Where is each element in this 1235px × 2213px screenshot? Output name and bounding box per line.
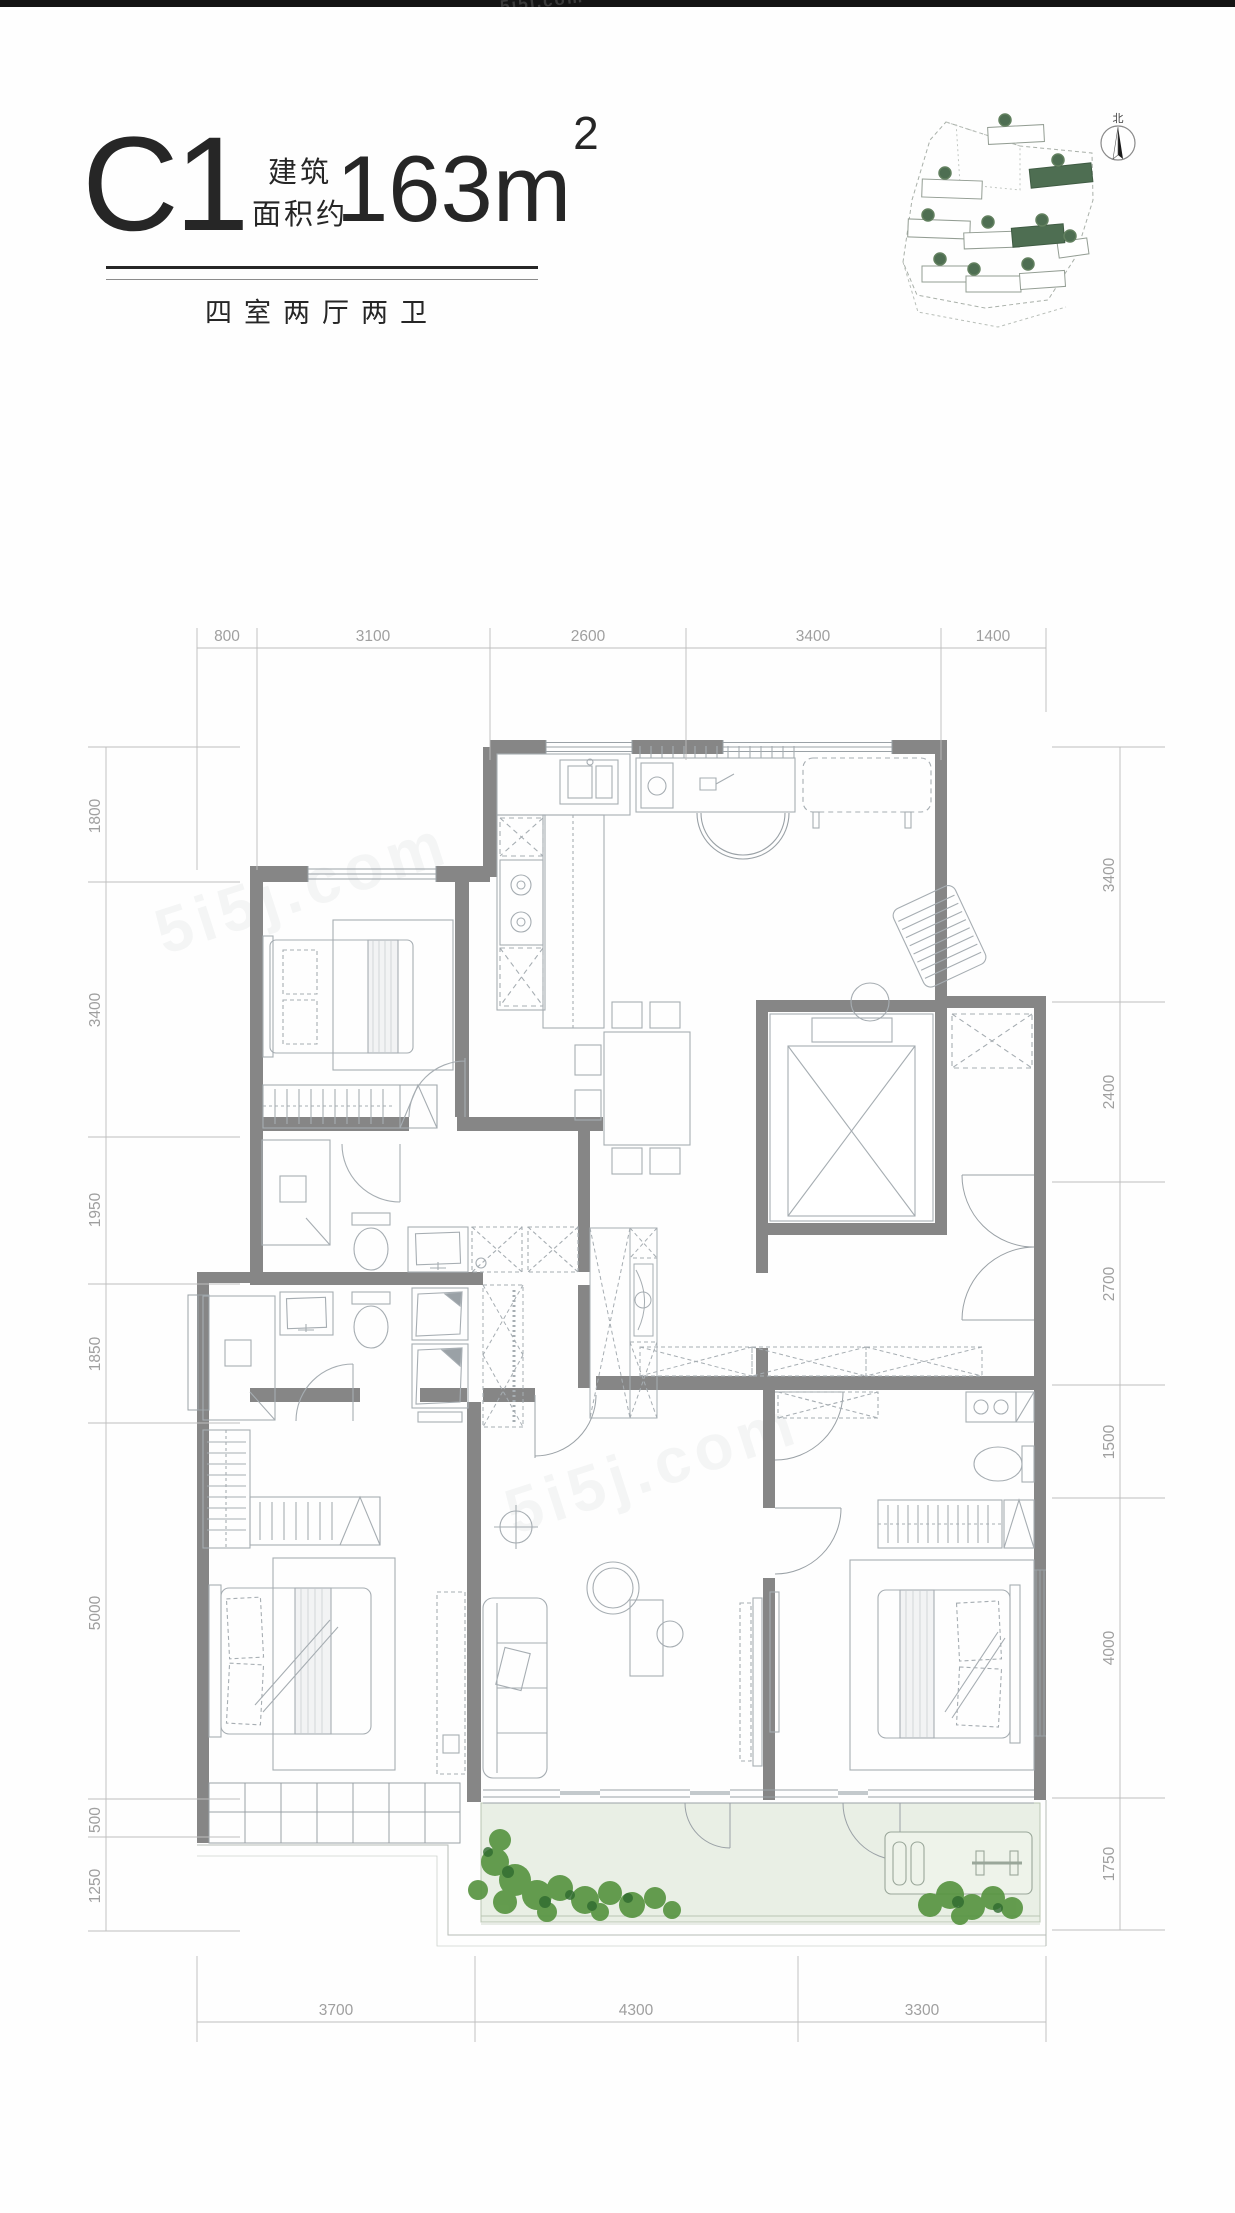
dim-label: 2700 xyxy=(1101,1266,1118,1301)
wardrobe-glyph xyxy=(203,1430,380,1548)
vanity-glyph xyxy=(408,1227,468,1272)
dim-label: 3400 xyxy=(796,628,831,645)
dim-label: 4300 xyxy=(619,2002,654,2019)
laundry-cube-glyph xyxy=(472,1227,522,1272)
dim-label: 2600 xyxy=(571,628,606,645)
bedroom-top-left xyxy=(263,920,465,1128)
layout-label: 四室两厅两卫 xyxy=(106,291,538,330)
top-black-strip: 5i5j.com xyxy=(0,0,1235,7)
dim-label: 1250 xyxy=(87,1868,104,1903)
toilet-glyph xyxy=(352,1292,390,1348)
dim-label: 500 xyxy=(87,1807,104,1833)
dim-label: 1500 xyxy=(1101,1424,1118,1459)
interior-doors xyxy=(535,1175,1034,1860)
kitchen xyxy=(497,754,630,1028)
hall-closets xyxy=(483,1228,982,1427)
closet-glyph xyxy=(878,1500,1034,1548)
coffee-table-glyph xyxy=(587,1562,639,1614)
bed-glyph xyxy=(878,1585,1020,1743)
shower-glyph xyxy=(262,1140,330,1245)
square-meter-superscript: 2 xyxy=(573,107,599,159)
bathroom-1 xyxy=(262,1140,578,1272)
kitchen-sink-glyph xyxy=(560,760,618,804)
sofa-glyph xyxy=(483,1598,547,1778)
dining-table-glyph xyxy=(604,1032,690,1145)
faucet-glyph xyxy=(700,774,734,790)
watermark-text: 5i5j.com xyxy=(499,0,585,7)
dim-label: 1800 xyxy=(87,798,104,833)
dim-label: 3100 xyxy=(356,628,391,645)
vanity-glyph xyxy=(280,1292,333,1335)
stove-glyph xyxy=(500,860,543,945)
area-prefix: 建筑 面积约 xyxy=(252,152,348,236)
dim-label: 1950 xyxy=(87,1192,104,1227)
north-label: 北 xyxy=(1113,112,1124,125)
area-value: 163m2 xyxy=(336,142,597,236)
floorplan-page: { "watermark": { "text": "5i5j.com" }, "… xyxy=(0,0,1235,2213)
entry-bench-glyph xyxy=(803,758,931,812)
dim-label: 2400 xyxy=(1101,1074,1118,1109)
area-prefix-line1: 建筑 xyxy=(252,152,348,194)
washer-glyph xyxy=(641,763,673,808)
flue-symbol xyxy=(494,1505,538,1549)
dim-label: 3400 xyxy=(87,992,104,1027)
dim-label: 4000 xyxy=(1101,1630,1118,1665)
entry-door-arc xyxy=(697,813,789,859)
dim-label: 5000 xyxy=(87,1595,104,1630)
bedroom-bottom-right xyxy=(770,1500,1034,1770)
site-highlighted-buildings xyxy=(1011,163,1093,247)
dim-label: 3400 xyxy=(1101,857,1118,892)
living-room xyxy=(483,1505,762,1778)
tv-glyph xyxy=(753,1598,762,1766)
dim-label: 3300 xyxy=(905,2002,940,2019)
plan-code: C1 xyxy=(82,118,245,252)
title-divider-thin xyxy=(106,279,538,280)
corner-sink-glyph xyxy=(1016,1392,1034,1422)
dim-label: 1400 xyxy=(976,628,1011,645)
desk-chair-glyph xyxy=(657,1621,683,1647)
toilet-glyph xyxy=(352,1213,390,1270)
dim-label: 800 xyxy=(214,628,240,645)
closet-glyph xyxy=(483,1285,523,1427)
shower-cell-glyph xyxy=(528,1227,578,1272)
dresser-glyph xyxy=(437,1592,465,1774)
dim-label: 3700 xyxy=(319,2002,354,2019)
dim-label: 1850 xyxy=(87,1336,104,1371)
master-bedroom xyxy=(203,1430,465,1774)
door-arc xyxy=(342,1144,400,1202)
site-plan-map: 北 xyxy=(870,80,1210,380)
title-divider xyxy=(106,266,538,269)
elevator-shaft xyxy=(770,1014,933,1221)
toilet-glyph xyxy=(974,1446,1034,1482)
floor-plan: 800 3100 2600 3400 1400 3700 4300 3300 1… xyxy=(0,560,1235,2120)
area-prefix-line2: 面积约 xyxy=(252,194,348,236)
bed-glyph xyxy=(209,1585,371,1737)
dim-label: 1750 xyxy=(1101,1846,1118,1881)
north-arrow-icon: 北 xyxy=(1101,112,1135,160)
bathroom-3 xyxy=(778,1392,1034,1482)
